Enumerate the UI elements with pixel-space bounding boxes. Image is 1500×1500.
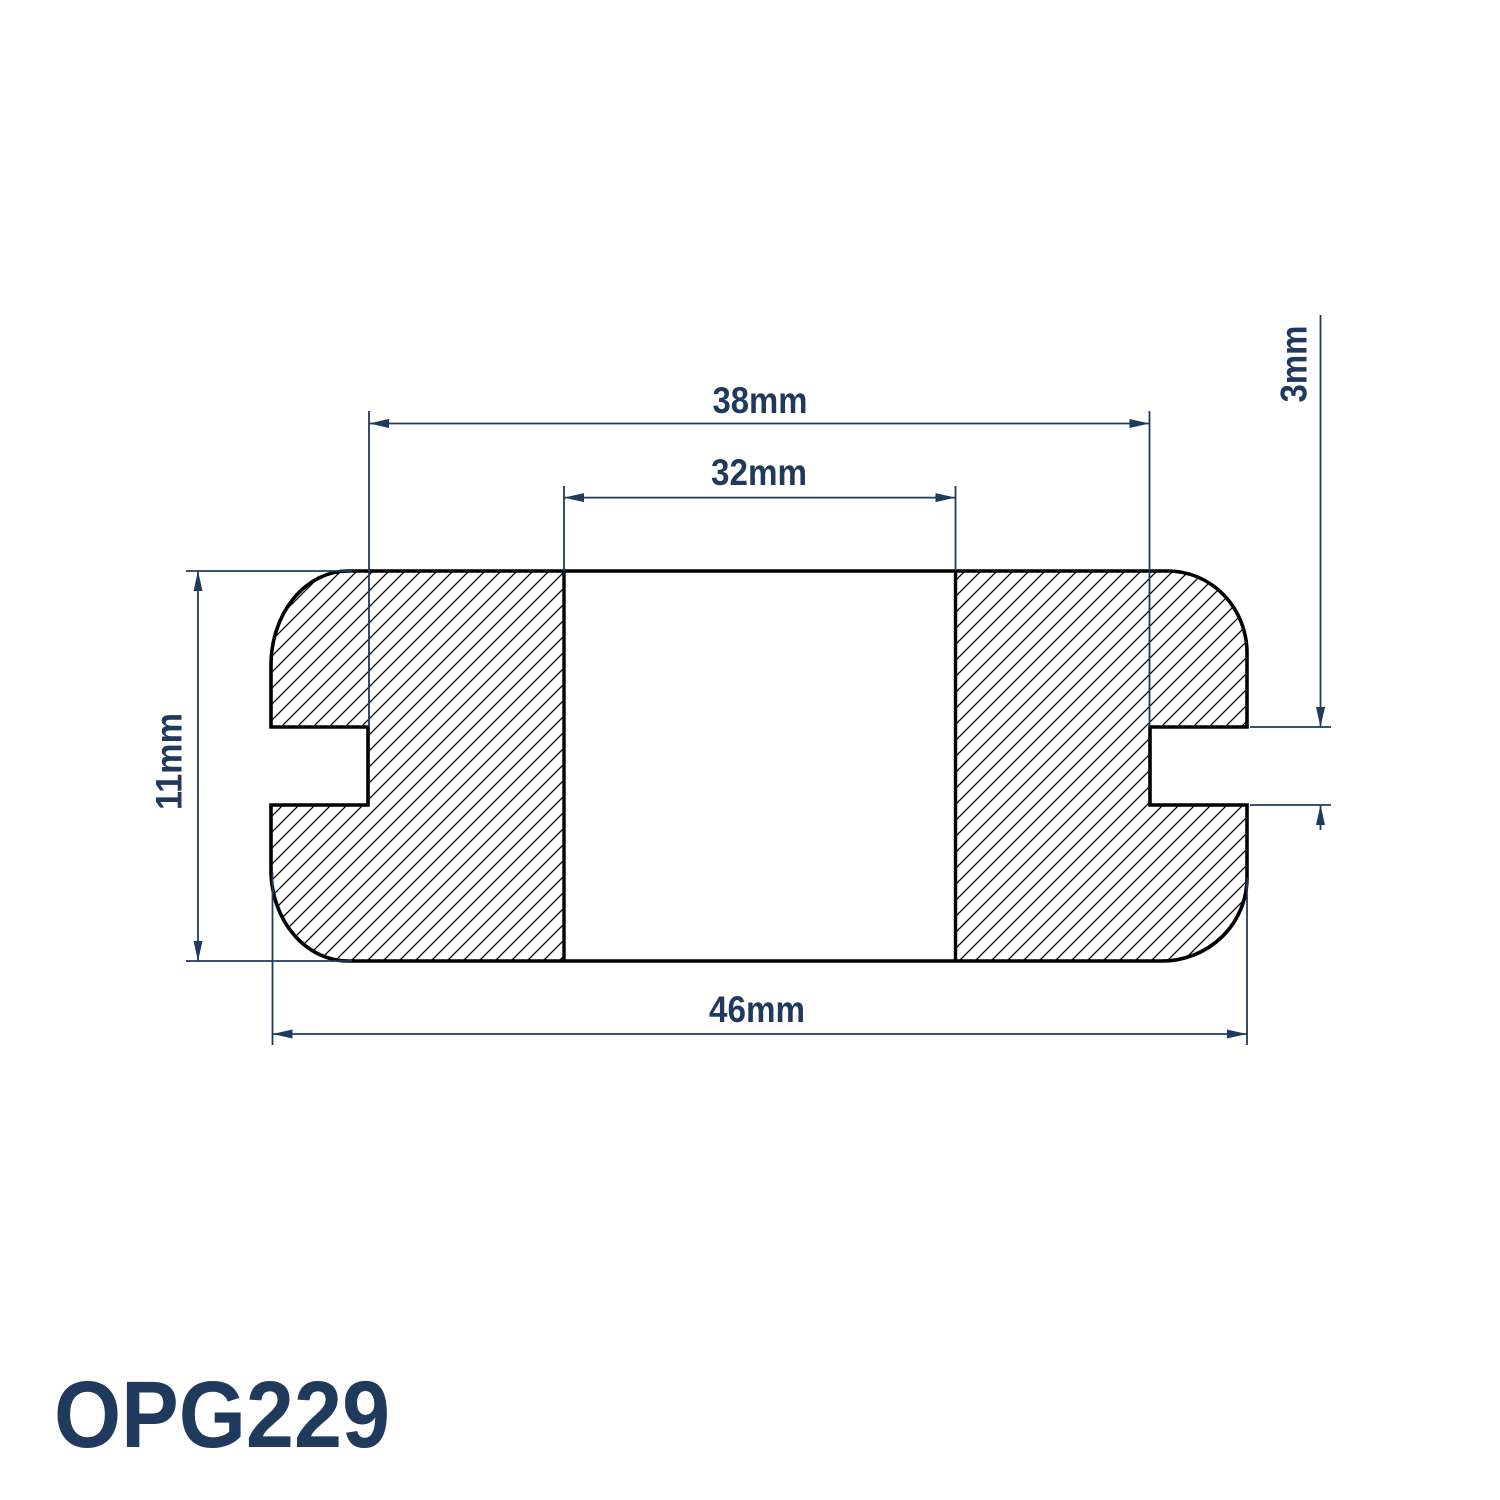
svg-text:3mm: 3mm	[1274, 326, 1315, 403]
svg-text:OPG229: OPG229	[54, 1362, 390, 1468]
svg-text:46mm: 46mm	[709, 989, 805, 1030]
svg-text:11mm: 11mm	[149, 713, 190, 810]
svg-text:38mm: 38mm	[713, 380, 808, 421]
svg-text:32mm: 32mm	[711, 452, 807, 493]
